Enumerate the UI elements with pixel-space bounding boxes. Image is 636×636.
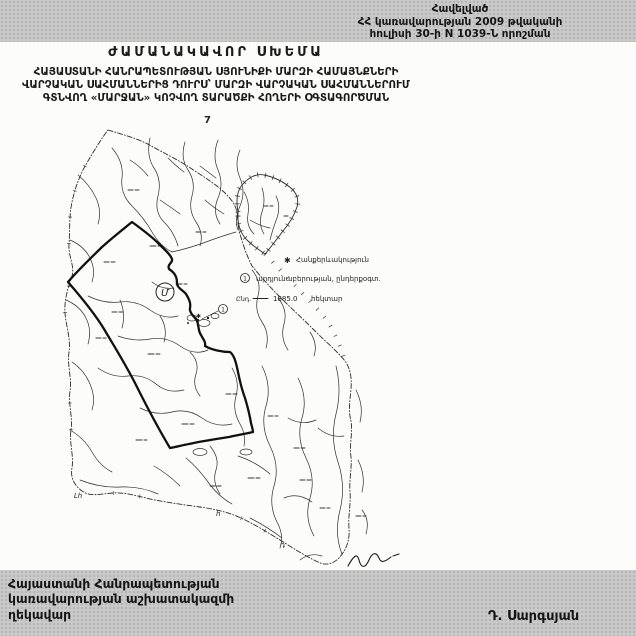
legend-label-1: Հանքերևակություն: [296, 256, 369, 264]
footer-org-line: Հայաստանի Հանրապետության: [8, 576, 234, 591]
point-marker-number: 1: [221, 307, 225, 314]
legend-marker-asterisk: ✱: [284, 256, 291, 265]
legend-marker-1: 1: [243, 276, 247, 283]
handwritten-mark: Լհ: [74, 492, 82, 500]
legend-label-2: արդյունաբերության, ընդերքօգտ.: [256, 275, 381, 283]
signatory-name: Դ. Սարգսյան: [488, 609, 579, 624]
legend-area-unit: հեկտար: [311, 295, 342, 303]
handwritten-mark: հ: [216, 510, 220, 518]
river-network: [66, 138, 367, 560]
footer-org-line: կառավարության աշխատակազմի: [8, 591, 234, 606]
signature-squiggle: [348, 554, 399, 567]
territory-letter-mark: Մ: [156, 283, 174, 301]
handwritten-marks: Լհ հ Դ: [74, 492, 285, 550]
territory-letter: Մ: [161, 288, 170, 299]
legend-area-value: 1885.0: [273, 295, 298, 303]
asterisk-mark: ✱: [196, 313, 201, 320]
footer-org-line: ղեկավար: [8, 607, 234, 622]
handwritten-mark: Դ: [280, 542, 285, 550]
scanned-document-page: Հավելված ՀՀ կառավարության 2009 թվականի հ…: [0, 0, 636, 636]
legend-area-label: Ընդ.: [236, 295, 251, 303]
marjan-territory-boundary: [68, 222, 253, 448]
territory-map: Մ 1 ✱ ✱ Հանքերևակություն 1 արդյունաբերու…: [0, 0, 636, 636]
footer-organization: Հայաստանի Հանրապետության կառավարության ա…: [8, 576, 234, 622]
